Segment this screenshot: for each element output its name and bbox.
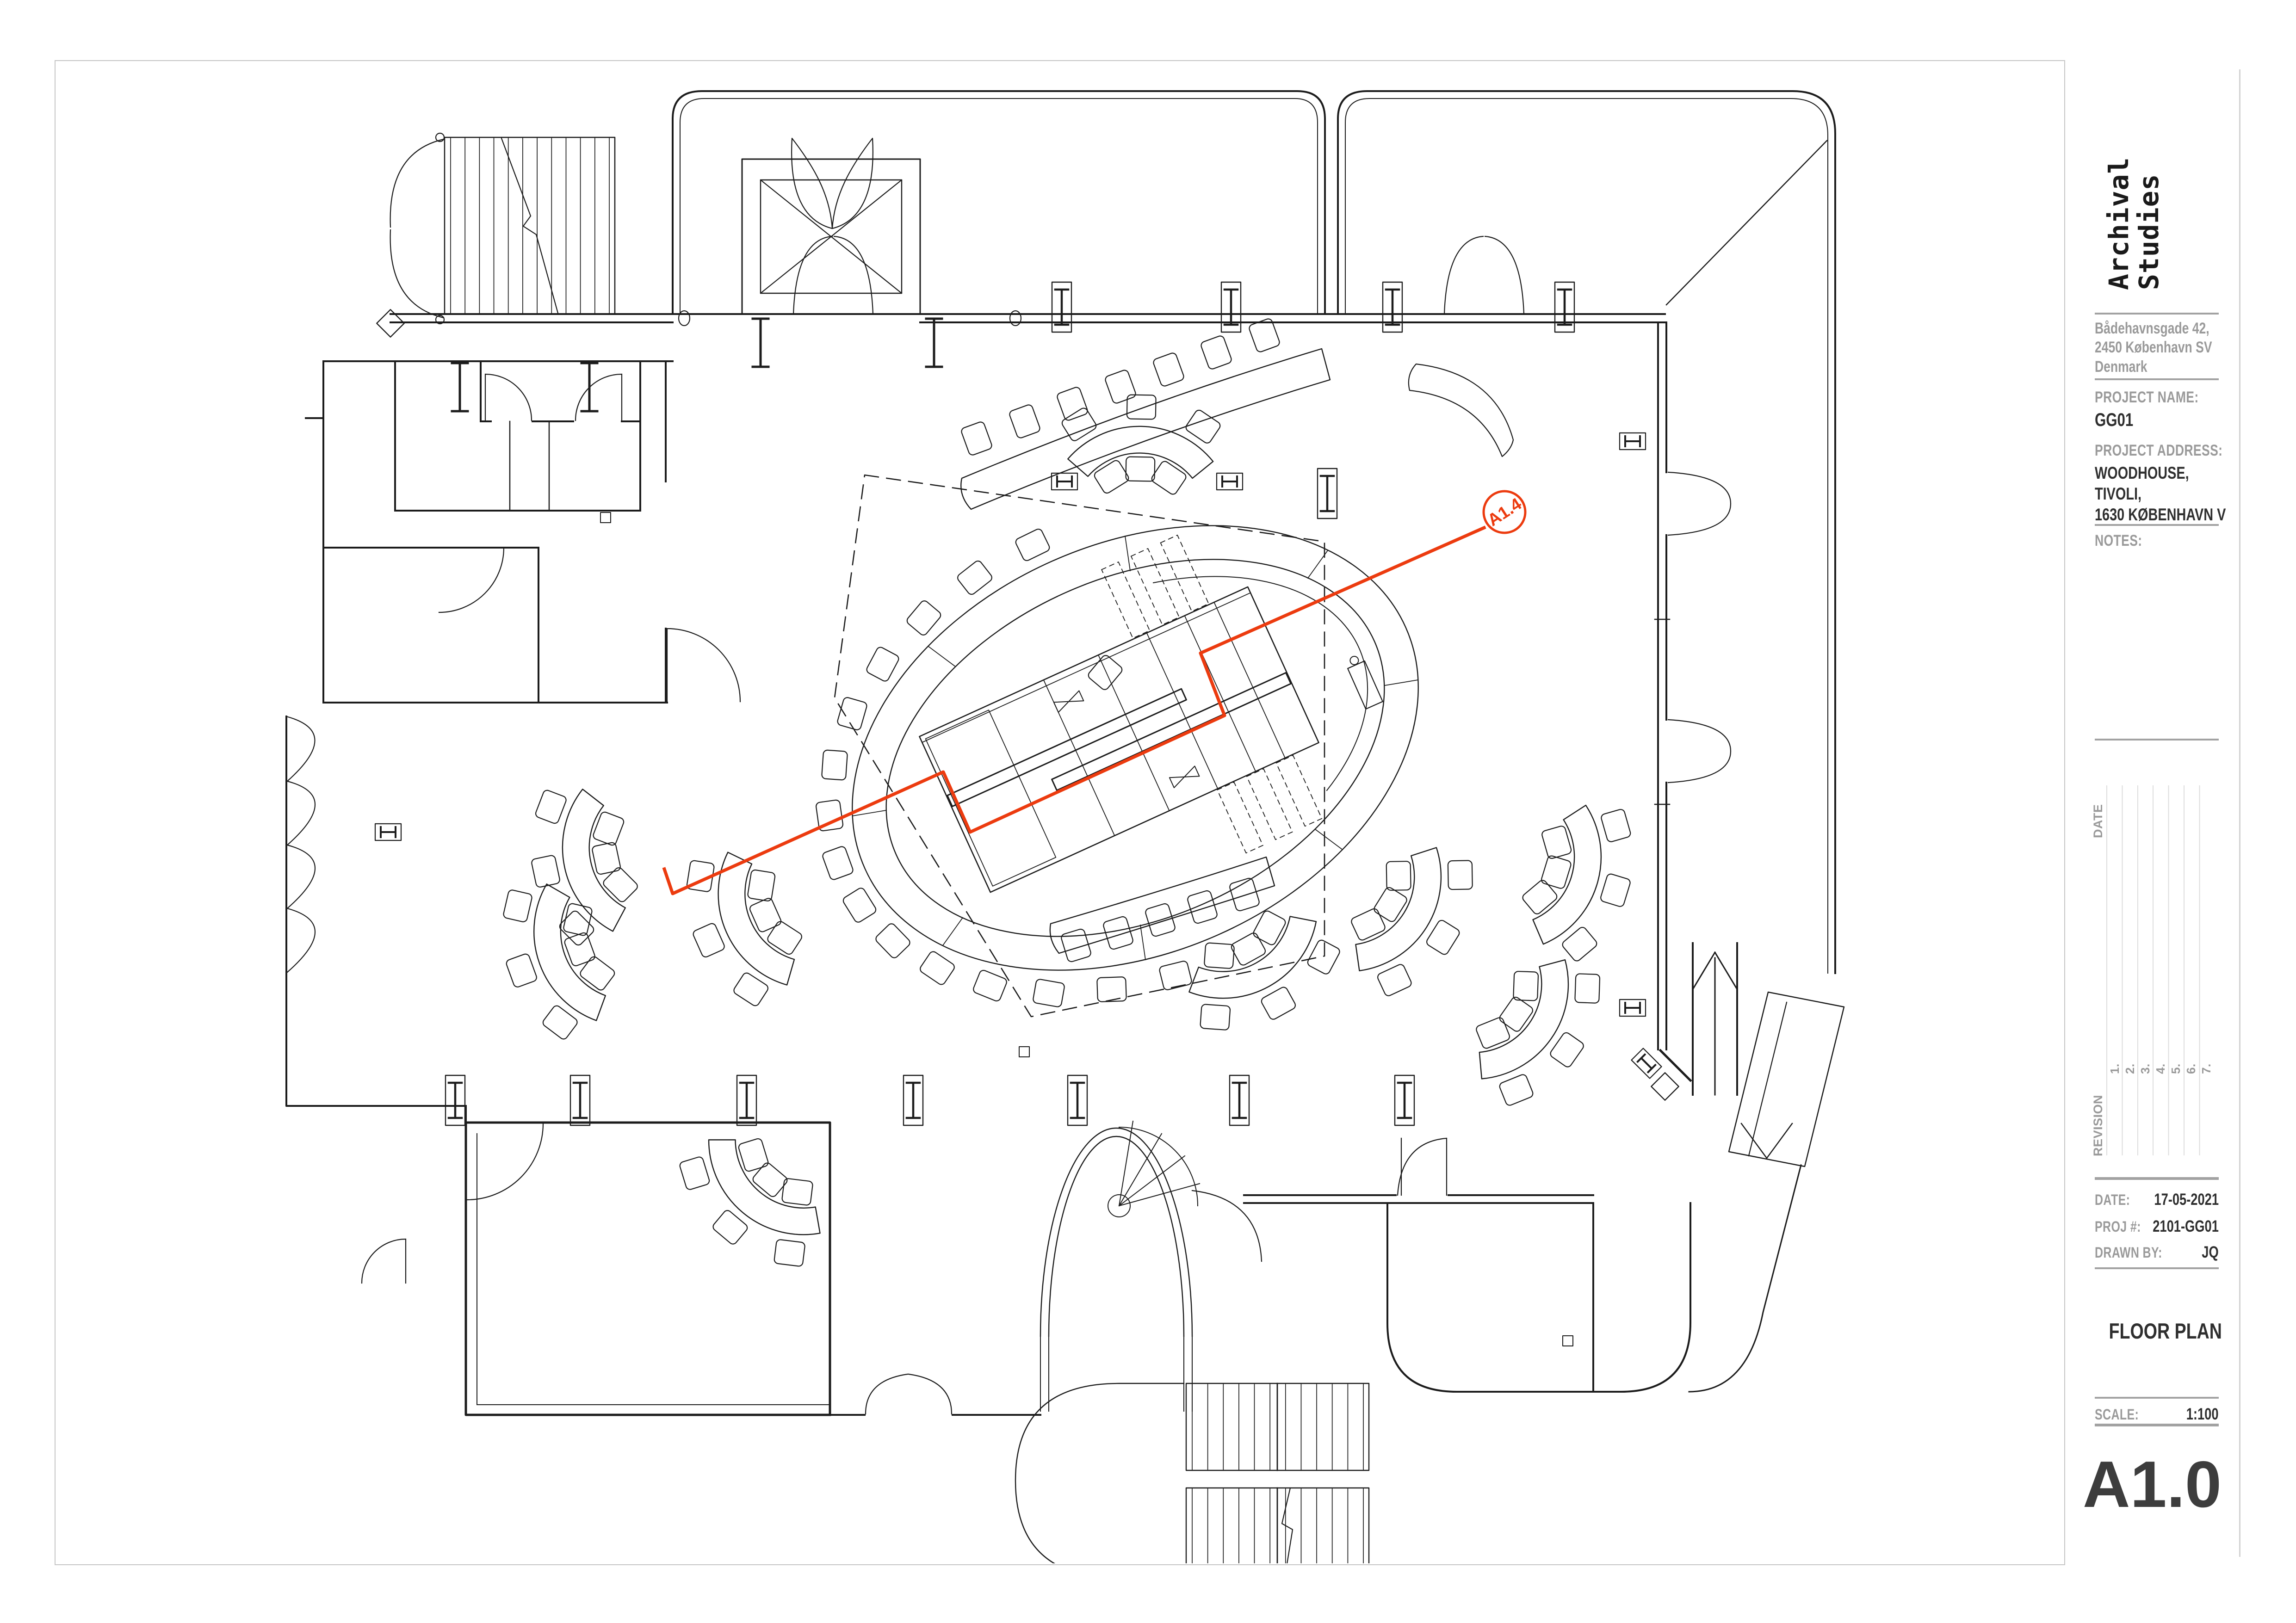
- revision-table-lines: [2106, 785, 2215, 1155]
- ibeam-symbol: [452, 363, 468, 411]
- tinysq-symbol: [1563, 1336, 1573, 1346]
- chair-symbol: [1009, 404, 1041, 439]
- chair-symbol: [1060, 928, 1092, 963]
- chair-symbol: [919, 950, 956, 986]
- hcol-symbol: [1631, 1048, 1661, 1078]
- revision-row-number: 1.: [2108, 1044, 2122, 1074]
- revision-row-number: 4.: [2154, 1044, 2168, 1074]
- address-line: Bådehavnsgade 42,: [2095, 319, 2209, 338]
- cluster-symbol: [1508, 787, 1651, 970]
- colbox-symbol: [570, 1075, 590, 1125]
- logo-line2: Studies: [2133, 174, 2165, 290]
- proj-number-value: 2101-GG01: [2128, 1217, 2219, 1236]
- cluster-symbol: [1325, 822, 1496, 1012]
- hcol-symbol: [1620, 1000, 1646, 1016]
- project-name-label: PROJECT NAME:: [2095, 389, 2228, 407]
- divider: [2095, 524, 2219, 526]
- colbox-symbol: [446, 1075, 465, 1125]
- chair-symbol: [1159, 960, 1193, 990]
- inner-wall-lines: [477, 99, 1828, 1405]
- chair-symbol: [905, 599, 942, 637]
- chair-symbol: [822, 750, 848, 780]
- cluster-symbol: [665, 831, 823, 1018]
- arena: [782, 349, 1513, 1055]
- colbox-symbol: [1052, 282, 1071, 332]
- chair-symbol: [1200, 335, 1232, 370]
- colbox-symbol: [1555, 282, 1574, 332]
- divider: [2095, 1177, 2219, 1180]
- hcol-symbol: [1217, 473, 1243, 490]
- address-line: 2450 København SV: [2095, 338, 2212, 357]
- chair-symbol: [822, 845, 854, 881]
- chair-symbol: [1056, 386, 1089, 421]
- divider: [2095, 1397, 2219, 1399]
- revision-label: REVISION: [2091, 1018, 2105, 1156]
- chair-symbol: [956, 559, 994, 596]
- project-name-value: GG01: [2095, 410, 2144, 431]
- divider: [2095, 313, 2219, 315]
- colbox-symbol: [1230, 1075, 1249, 1125]
- divider: [2095, 378, 2219, 380]
- chair-symbol: [842, 887, 878, 924]
- notes-label: NOTES:: [2095, 532, 2155, 550]
- revision-row-number: 6.: [2184, 1044, 2198, 1074]
- revision-date-label: DATE: [2091, 783, 2105, 838]
- chair-symbol: [874, 922, 911, 960]
- project-address-value: WOODHOUSE, TIVOLI, 1630 KØBENHAVN V: [2095, 463, 2263, 525]
- chair-symbol: [1015, 528, 1051, 562]
- revision-row-number: 2.: [2123, 1044, 2137, 1074]
- divider: [2095, 1424, 2219, 1426]
- colbox-symbol: [1318, 469, 1337, 518]
- ibeam-symbol: [582, 363, 597, 411]
- cluster-symbol: [517, 774, 649, 953]
- sheet-number: A1.0: [2083, 1447, 2222, 1523]
- title-block-right-rule: [2239, 69, 2240, 1557]
- chair-symbol: [1104, 369, 1137, 404]
- tinysq-symbol: [1019, 1047, 1029, 1057]
- date-value: 17-05-2021: [2128, 1191, 2219, 1209]
- cluster-symbol: [483, 864, 632, 1050]
- chair-symbol: [1097, 977, 1126, 1002]
- diam-symbol: [1651, 1073, 1678, 1100]
- colbox-symbol: [1068, 1075, 1087, 1125]
- studio-logo: ArchivalStudies: [2104, 117, 2178, 290]
- chair-symbol: [1033, 979, 1065, 1007]
- hcol-symbol: [1052, 473, 1077, 490]
- logo-line1: Archival: [2103, 157, 2135, 290]
- doors: [286, 133, 1735, 1414]
- divider: [2095, 739, 2219, 741]
- chair-symbol: [1152, 352, 1185, 387]
- tinysq-symbol: [600, 512, 611, 523]
- colbox-symbol: [1221, 282, 1241, 332]
- sheet-title: FLOOR PLAN: [2095, 1318, 2219, 1344]
- divider: [2095, 1267, 2219, 1269]
- chair-symbol: [960, 421, 993, 456]
- studio-address: Bådehavnsgade 42, 2450 København SV Denm…: [2095, 319, 2245, 376]
- colbox-symbol: [1395, 1075, 1414, 1125]
- section-marker-label: A1.4: [1484, 494, 1525, 530]
- colbox-symbol: [737, 1075, 756, 1125]
- drawn-by-value: JQ: [2128, 1243, 2219, 1262]
- cluster-symbol: [1448, 933, 1623, 1123]
- project-address-label: PROJECT ADDRESS:: [2095, 442, 2259, 460]
- chair-symbol: [865, 646, 900, 682]
- revision-row-number: 7.: [2199, 1044, 2214, 1074]
- scale-value: 1:100: [2128, 1405, 2219, 1424]
- plan-symbols: [375, 282, 1679, 1346]
- cluster-symbol: [661, 1108, 848, 1288]
- colbox-symbol: [904, 1075, 923, 1125]
- floor-plan-drawing: A1.4: [55, 60, 2063, 1563]
- hcol-symbol: [375, 824, 401, 840]
- chair-symbol: [1187, 890, 1218, 924]
- revision-row-number: 5.: [2169, 1044, 2183, 1074]
- colbox-symbol: [1383, 282, 1402, 332]
- section-line: A1.4: [664, 491, 1525, 894]
- ibeam-symbol: [926, 319, 942, 367]
- address-line: Denmark: [2095, 358, 2147, 376]
- drawing-page: A1.4 ArchivalStudies Bådehavnsgade 42, 2…: [0, 0, 2296, 1623]
- ibeam-symbol: [753, 319, 768, 367]
- hcol-symbol: [1620, 433, 1646, 450]
- chair-symbol: [972, 969, 1008, 1002]
- revision-row-number: 3.: [2138, 1044, 2153, 1074]
- stairs: [445, 137, 1369, 1563]
